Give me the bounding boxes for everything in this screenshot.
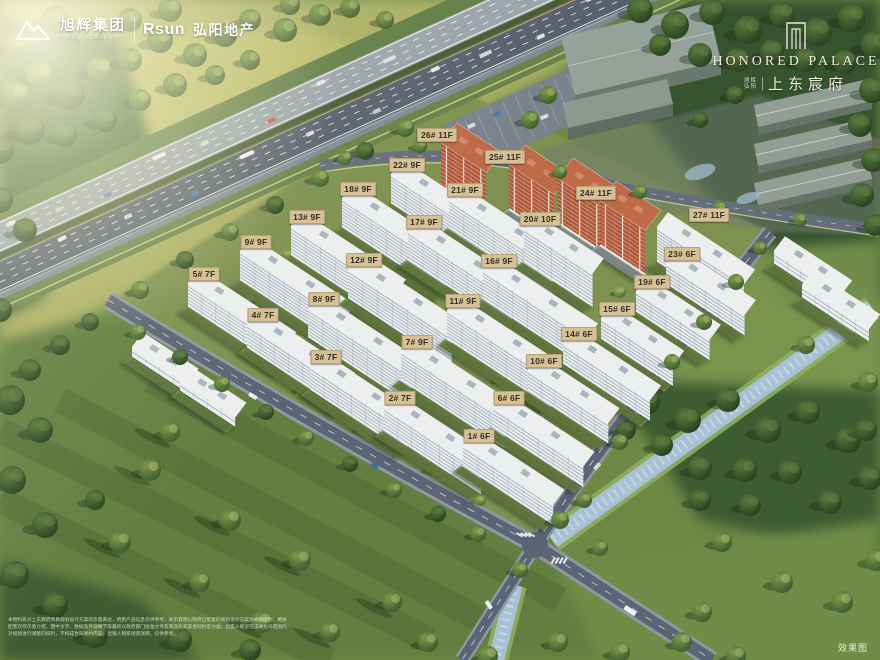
building-label: 22# 9F <box>389 158 425 172</box>
building-label: 15# 6F <box>599 302 635 316</box>
brand-divider <box>762 77 763 90</box>
render-watermark: 效果图 <box>838 641 868 654</box>
rsun-name-en: Rsun <box>143 21 185 39</box>
brand-developers: 旭辉 弘阳 <box>744 78 757 90</box>
building-label: 2# 7F <box>385 391 416 405</box>
brand-title-en: HONORED PALACE <box>703 54 880 70</box>
disclaimer-line: 本物料系对上东宸府项目规划设计方案的示意表达，销售产品信息仅供参考；本示意图以政… <box>8 616 304 623</box>
building-label: 10# 6F <box>526 354 562 368</box>
disclaimer-line: 对规划进行调整的权利，不构成合同要约内容；出镜人物系场景演绎，仅供参考。 <box>8 630 304 637</box>
rsun-name-cn: 弘阳地产 <box>193 20 255 40</box>
building-label: 18# 9F <box>340 182 376 196</box>
building-label: 12# 9F <box>346 253 382 267</box>
building-label: 6# 6F <box>494 391 525 405</box>
cifi-name-cn: 旭辉集团 <box>60 19 126 34</box>
logo-divider <box>134 17 135 43</box>
building-label: 19# 6F <box>634 275 670 289</box>
building-label: 13# 9F <box>289 210 325 224</box>
building-label: 26# 11F <box>417 128 457 142</box>
cifi-name-en: CIFI GROUP <box>60 35 126 41</box>
building-label: 5# 7F <box>189 267 220 281</box>
building-label: 27# 11F <box>689 208 729 222</box>
building-label: 14# 6F <box>561 327 597 341</box>
building-label: 24# 11F <box>576 186 616 200</box>
palace-gate-icon <box>784 20 808 50</box>
building-label: 20# 10F <box>520 212 561 226</box>
building-label: 16# 9F <box>481 254 517 268</box>
building-label: 11# 9F <box>445 294 480 308</box>
building-label: 3# 7F <box>311 350 342 364</box>
brand-dev-rsun: 弘阳 <box>744 84 757 90</box>
disclaimer-text: 本物料系对上东宸府项目规划设计方案的示意表达，销售产品信息仅供参考；本示意图以政… <box>8 616 304 637</box>
building-label: 7# 9F <box>402 335 433 349</box>
building-label: 1# 6F <box>464 429 495 443</box>
cifi-mountain-icon <box>14 16 52 44</box>
aerial-rendering-poster: 1# 6F2# 7F3# 7F4# 7F5# 7F6# 6F7# 9F8# 9F… <box>0 0 880 660</box>
building-labels-layer: 1# 6F2# 7F3# 7F4# 7F5# 7F6# 6F7# 9F8# 9F… <box>0 0 880 660</box>
disclaimer-line: 配套仅作示意介绍，图中文字、数据及外观细节等最终以政府部门批准文件及商品房买卖合… <box>8 623 304 630</box>
brand-title-cn: 上东宸府 <box>768 73 848 94</box>
brand-dev-cifi: 旭辉 <box>744 78 757 84</box>
developer-logos: 旭辉集团 CIFI GROUP Rsun 弘阳地产 <box>14 16 255 44</box>
project-brand-logo: HONORED PALACE 旭辉 弘阳 上东宸府 <box>703 20 880 94</box>
building-label: 17# 9F <box>406 215 442 229</box>
building-label: 8# 9F <box>309 292 340 306</box>
building-label: 25# 11F <box>485 150 525 164</box>
building-label: 23# 6F <box>664 247 700 261</box>
building-label: 21# 9F <box>447 183 483 197</box>
cifi-logo-text: 旭辉集团 CIFI GROUP <box>60 19 126 41</box>
building-label: 9# 9F <box>241 235 272 249</box>
building-label: 4# 7F <box>248 308 279 322</box>
